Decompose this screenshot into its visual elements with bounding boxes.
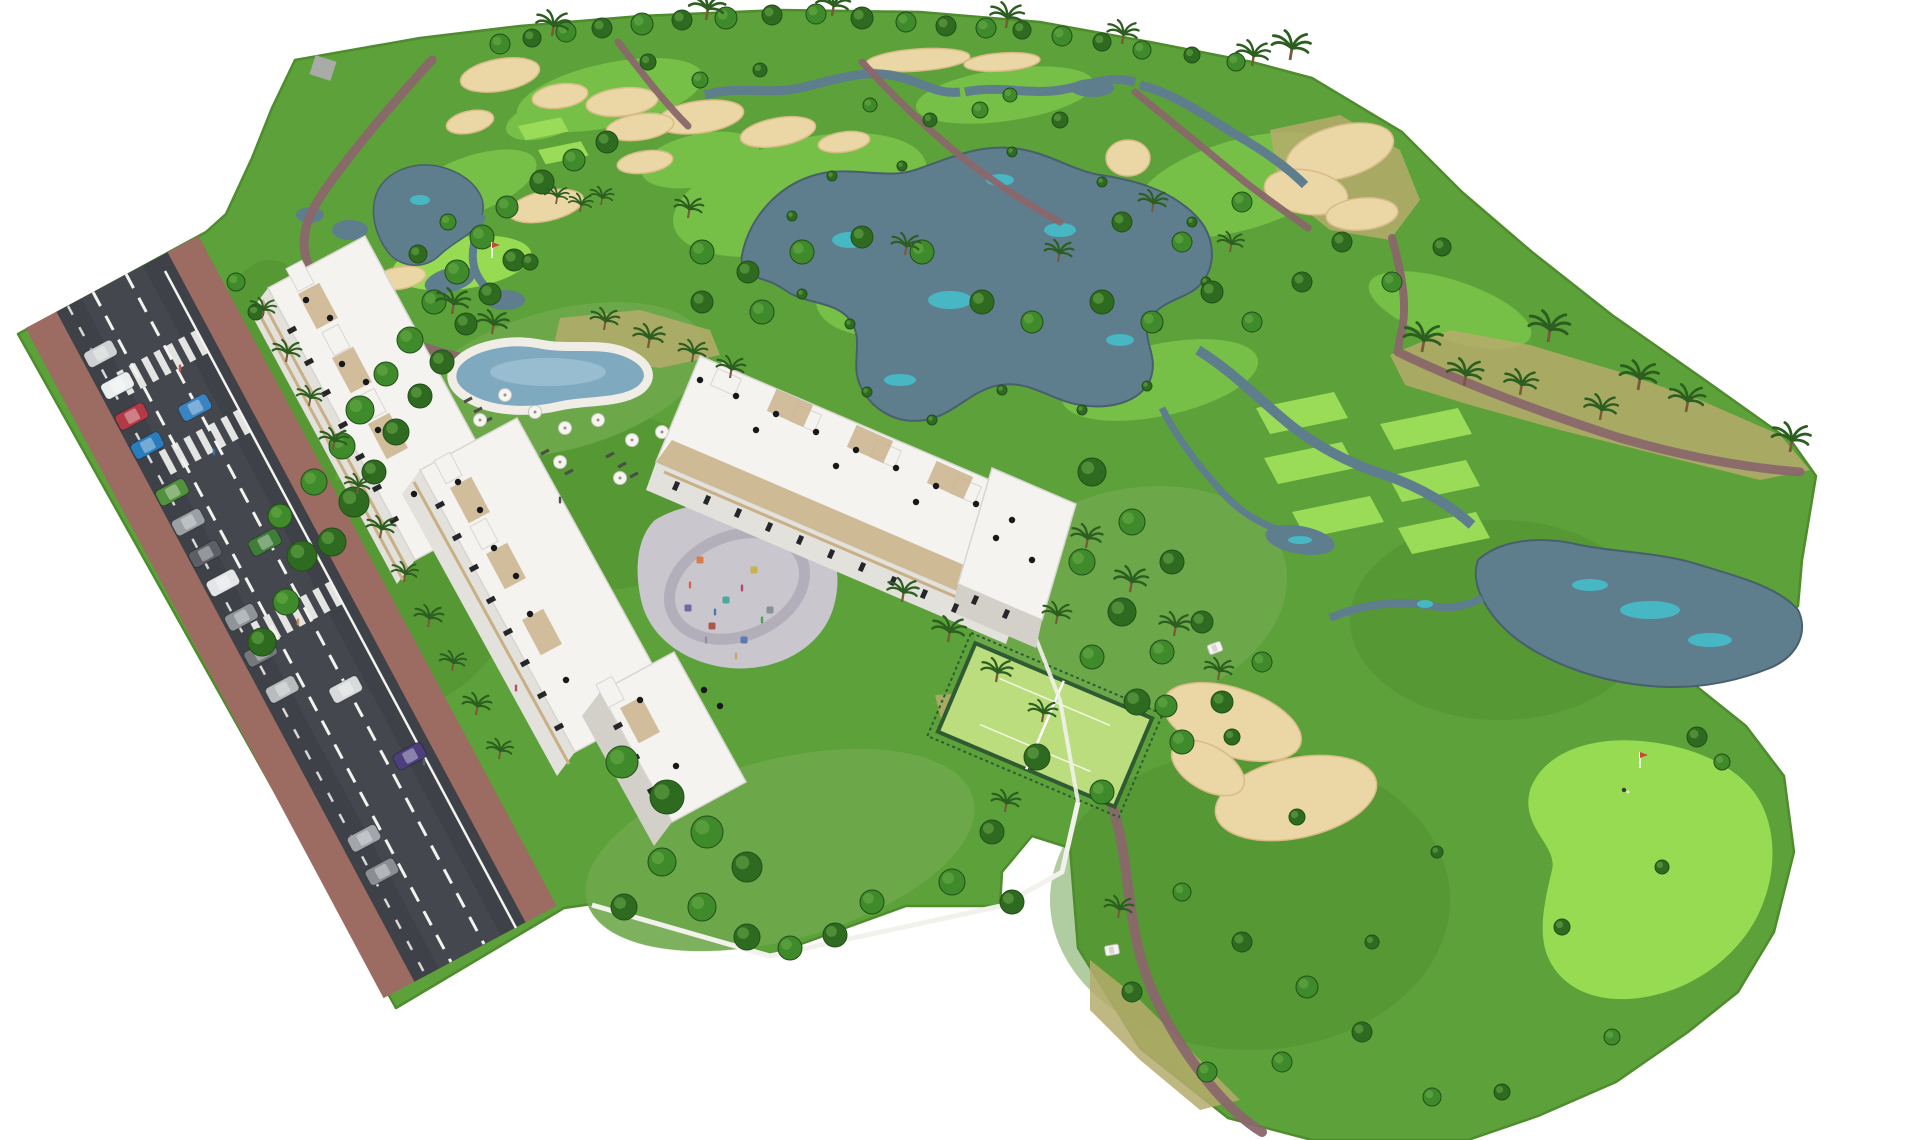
person xyxy=(297,619,299,626)
tree-highlight xyxy=(1435,240,1443,248)
tree-highlight xyxy=(828,172,833,177)
rooftop-umbrella xyxy=(411,491,417,497)
umbrella xyxy=(626,434,639,447)
playground-item xyxy=(751,567,758,574)
tree-highlight xyxy=(642,56,649,63)
tree-highlight xyxy=(693,243,704,254)
tree-highlight xyxy=(448,263,459,274)
round-tree xyxy=(1097,177,1107,187)
rooftop-umbrella xyxy=(303,297,309,303)
round-tree xyxy=(1173,883,1191,901)
round-tree xyxy=(648,848,676,876)
golf-cart xyxy=(1104,944,1120,956)
tree-highlight xyxy=(1158,698,1168,708)
round-tree xyxy=(1155,695,1177,717)
tree-highlight xyxy=(1115,215,1124,224)
round-tree xyxy=(1292,272,1312,292)
tree-highlight xyxy=(1083,648,1094,659)
tree-highlight xyxy=(411,247,419,255)
tree-highlight xyxy=(1112,602,1125,615)
round-tree xyxy=(936,16,956,36)
tree-highlight xyxy=(973,293,984,304)
round-tree xyxy=(734,924,760,950)
tree-highlight xyxy=(1024,314,1034,324)
rooftop-umbrella xyxy=(563,677,569,683)
north-pond xyxy=(1070,79,1114,97)
tree-highlight xyxy=(442,216,449,223)
round-tree xyxy=(1078,458,1106,486)
rooftop-umbrella xyxy=(455,479,461,485)
round-tree xyxy=(408,384,432,408)
tree-highlight xyxy=(1188,218,1193,223)
round-tree xyxy=(851,7,873,29)
tree-highlight xyxy=(939,19,948,28)
palm-tree xyxy=(1272,31,1310,60)
tree-highlight xyxy=(1008,148,1013,153)
rooftop-umbrella xyxy=(513,573,519,579)
tree-highlight xyxy=(493,37,502,46)
tree-highlight xyxy=(925,115,931,121)
tree-highlight xyxy=(755,65,761,71)
round-tree xyxy=(1170,730,1194,754)
shallow-water xyxy=(1106,334,1134,346)
tree-highlight xyxy=(863,388,868,393)
shallow-water xyxy=(1572,579,1608,591)
playground-item xyxy=(697,557,704,564)
rooftop-umbrella xyxy=(375,427,381,433)
round-tree xyxy=(339,487,369,517)
tree-highlight xyxy=(1122,512,1134,524)
tree-highlight xyxy=(1657,862,1663,868)
person xyxy=(714,609,716,616)
tree-highlight xyxy=(276,592,288,604)
person xyxy=(761,617,763,624)
tree-highlight xyxy=(1235,935,1244,944)
person xyxy=(179,365,181,372)
tree-highlight xyxy=(998,386,1003,391)
umbrella xyxy=(554,456,567,469)
tree-highlight xyxy=(425,293,436,304)
round-tree xyxy=(1232,932,1252,952)
tree-highlight xyxy=(499,199,509,209)
round-tree xyxy=(1494,1084,1510,1100)
round-tree xyxy=(1160,550,1184,574)
tree-highlight xyxy=(251,632,264,645)
tree-highlight xyxy=(736,856,750,870)
person xyxy=(735,653,737,660)
tree-highlight xyxy=(1163,553,1174,564)
round-tree xyxy=(1423,1088,1441,1106)
tree-highlight xyxy=(1015,23,1023,31)
round-tree xyxy=(374,362,398,386)
round-tree xyxy=(1003,88,1017,102)
round-tree xyxy=(440,214,456,230)
round-tree xyxy=(1013,21,1031,39)
tree-highlight xyxy=(1095,35,1103,43)
tree-highlight xyxy=(473,228,484,239)
round-tree xyxy=(753,63,767,77)
round-tree xyxy=(860,890,884,914)
tree-highlight xyxy=(1194,614,1204,624)
tree-highlight xyxy=(846,320,851,325)
tree-highlight xyxy=(1135,43,1143,51)
round-tree xyxy=(1069,549,1095,575)
tree-highlight xyxy=(1214,694,1224,704)
rooftop-umbrella xyxy=(833,463,839,469)
umbrella-pole xyxy=(564,427,567,430)
round-tree xyxy=(845,319,855,329)
tree-highlight xyxy=(1153,643,1164,654)
tree-highlight xyxy=(1226,731,1233,738)
round-tree xyxy=(691,816,723,848)
round-tree xyxy=(923,113,937,127)
round-tree xyxy=(1365,935,1379,949)
round-tree xyxy=(863,98,877,112)
round-tree xyxy=(1604,1029,1620,1045)
round-tree xyxy=(1021,311,1043,333)
round-tree xyxy=(1090,290,1114,314)
tree-highlight xyxy=(1433,848,1438,853)
round-tree xyxy=(806,4,826,24)
tree-highlight xyxy=(898,162,903,167)
tree-highlight xyxy=(1716,756,1723,763)
tree-highlight xyxy=(343,491,357,505)
rooftop-umbrella xyxy=(637,697,643,703)
round-tree xyxy=(318,528,346,556)
tree-highlight xyxy=(1072,552,1084,564)
round-tree xyxy=(1382,272,1402,292)
round-tree xyxy=(939,869,965,895)
playground-item xyxy=(685,605,692,612)
tree-highlight xyxy=(1093,293,1104,304)
round-tree xyxy=(273,589,299,615)
tree-highlight xyxy=(595,21,604,30)
person xyxy=(515,685,517,692)
tree-highlight xyxy=(1291,811,1298,818)
tree-highlight xyxy=(1078,406,1083,411)
round-tree xyxy=(1197,1062,1217,1082)
rooftop-umbrella xyxy=(853,447,859,453)
tree-highlight xyxy=(942,872,954,884)
round-tree xyxy=(1211,691,1233,713)
umbrella xyxy=(614,472,627,485)
tree-highlight xyxy=(798,290,803,295)
tree-highlight xyxy=(793,243,804,254)
tree-highlight xyxy=(652,852,665,865)
round-tree xyxy=(1714,754,1730,770)
round-tree xyxy=(640,54,656,70)
round-tree xyxy=(1007,147,1017,157)
tree-highlight xyxy=(1606,1031,1613,1038)
round-tree xyxy=(592,18,612,38)
tree-highlight xyxy=(692,897,705,910)
tree-highlight xyxy=(566,152,576,162)
round-tree xyxy=(1252,652,1272,672)
umbrella-pole xyxy=(534,411,537,414)
round-tree xyxy=(1201,281,1223,303)
rooftop-umbrella xyxy=(717,703,723,709)
round-tree xyxy=(383,419,409,445)
tree-highlight xyxy=(1144,314,1154,324)
pool-shallow xyxy=(490,358,606,386)
round-tree xyxy=(301,469,327,495)
round-tree xyxy=(611,894,637,920)
tree-highlight xyxy=(524,256,531,263)
tree-highlight xyxy=(654,784,669,799)
umbrella xyxy=(559,422,572,435)
rooftop-umbrella xyxy=(363,379,369,385)
rooftop-umbrella xyxy=(527,611,533,617)
tree-highlight xyxy=(433,353,444,364)
rooftop-umbrella xyxy=(753,427,759,433)
rooftop-umbrella xyxy=(339,361,345,367)
round-tree xyxy=(997,385,1007,395)
tree-highlight xyxy=(854,10,864,20)
round-tree xyxy=(1141,311,1163,333)
tree-highlight xyxy=(1127,692,1139,704)
rooftop-umbrella xyxy=(491,545,497,551)
tree-highlight xyxy=(1143,382,1148,387)
tree-highlight xyxy=(271,507,282,518)
round-tree xyxy=(503,249,525,271)
tree-highlight xyxy=(1556,921,1563,928)
round-tree xyxy=(248,628,276,656)
round-tree xyxy=(596,131,618,153)
tree-highlight xyxy=(899,15,908,24)
tree-highlight xyxy=(1204,284,1214,294)
tree-highlight xyxy=(974,104,981,111)
round-tree xyxy=(1052,26,1072,46)
rooftop-umbrella xyxy=(913,499,919,505)
round-tree xyxy=(737,261,759,283)
round-tree xyxy=(522,254,538,270)
tree-highlight xyxy=(599,134,609,144)
round-tree xyxy=(851,226,873,248)
round-tree xyxy=(445,260,469,284)
round-tree xyxy=(362,460,386,484)
round-tree xyxy=(1000,890,1024,914)
umbrella xyxy=(592,414,605,427)
tree-highlight xyxy=(1496,1086,1503,1093)
rooftop-umbrella xyxy=(933,483,939,489)
round-tree xyxy=(1172,232,1192,252)
umbrella-pole xyxy=(597,419,600,422)
rooftop-umbrella xyxy=(701,687,707,693)
tree-highlight xyxy=(809,7,818,16)
round-tree xyxy=(455,313,477,335)
tree-highlight xyxy=(1175,235,1184,244)
round-tree xyxy=(1191,611,1213,633)
playground-item xyxy=(741,637,748,644)
tree-highlight xyxy=(291,545,305,559)
tree-highlight xyxy=(983,823,994,834)
rooftop-umbrella xyxy=(673,763,679,769)
playground-item xyxy=(723,597,730,604)
tree-highlight xyxy=(1093,783,1104,794)
round-tree xyxy=(1142,381,1152,391)
tree-highlight xyxy=(737,927,749,939)
tree-highlight xyxy=(350,400,363,413)
tree-highlight xyxy=(525,31,533,39)
round-tree xyxy=(1119,509,1145,535)
round-tree xyxy=(1090,780,1114,804)
tree-highlight xyxy=(1173,733,1184,744)
umbrella xyxy=(474,414,487,427)
rooftop-umbrella xyxy=(993,535,999,541)
tree-highlight xyxy=(1055,29,1064,38)
tree-highlight xyxy=(854,229,864,239)
round-tree xyxy=(823,923,847,947)
umbrella-pole xyxy=(479,419,482,422)
rooftop-umbrella xyxy=(1029,557,1035,563)
tree-highlight xyxy=(863,893,874,904)
round-tree xyxy=(606,746,638,778)
tree-highlight xyxy=(1186,49,1193,56)
shallow-water xyxy=(1417,600,1433,608)
tree-highlight xyxy=(1245,315,1254,324)
round-tree xyxy=(692,72,708,88)
golfer xyxy=(1622,788,1626,792)
tree-highlight xyxy=(506,252,516,262)
tree-highlight xyxy=(1335,235,1344,244)
round-tree xyxy=(910,240,934,264)
tree-highlight xyxy=(788,212,793,217)
tree-highlight xyxy=(765,8,774,17)
round-tree xyxy=(470,225,494,249)
round-tree xyxy=(787,211,797,221)
umbrella xyxy=(529,406,542,419)
tree-highlight xyxy=(482,286,492,296)
round-tree xyxy=(346,396,374,424)
round-tree xyxy=(750,300,774,324)
tree-highlight xyxy=(377,365,388,376)
playground-item xyxy=(709,623,716,630)
round-tree xyxy=(1232,192,1252,212)
round-tree xyxy=(1133,41,1151,59)
tree-highlight xyxy=(753,303,764,314)
tree-highlight xyxy=(979,21,988,30)
tree-highlight xyxy=(229,275,237,283)
round-tree xyxy=(1655,860,1669,874)
shallow-water xyxy=(410,195,430,205)
round-tree xyxy=(631,13,653,35)
person xyxy=(741,585,743,592)
round-tree xyxy=(1122,982,1142,1002)
round-tree xyxy=(672,10,692,30)
round-tree xyxy=(976,18,996,38)
round-tree xyxy=(1052,112,1068,128)
tree-highlight xyxy=(304,472,316,484)
round-tree xyxy=(287,541,317,571)
round-tree xyxy=(563,149,585,171)
tree-highlight xyxy=(1295,275,1304,284)
rooftop-umbrella xyxy=(327,315,333,321)
round-tree xyxy=(896,12,916,32)
round-tree xyxy=(523,29,541,47)
tree-highlight xyxy=(614,897,626,909)
round-tree xyxy=(927,415,937,425)
person xyxy=(213,449,215,456)
tree-highlight xyxy=(1003,893,1014,904)
round-tree xyxy=(1187,217,1197,227)
playground-item xyxy=(767,607,774,614)
rooftop-umbrella xyxy=(477,507,483,513)
tree-highlight xyxy=(1175,885,1183,893)
round-tree xyxy=(1080,645,1104,669)
round-tree xyxy=(827,171,837,181)
tree-highlight xyxy=(1255,655,1264,664)
shallow-water xyxy=(1288,536,1312,544)
round-tree xyxy=(897,161,907,171)
tree-highlight xyxy=(634,16,644,26)
umbrella-pole xyxy=(661,431,664,434)
round-tree xyxy=(1296,976,1318,998)
round-tree xyxy=(1289,809,1305,825)
tree-highlight xyxy=(1275,1055,1284,1064)
umbrella-pole xyxy=(631,439,634,442)
tree-highlight xyxy=(411,387,422,398)
rooftop-umbrella xyxy=(813,429,819,435)
shallow-water xyxy=(928,291,972,309)
tree-highlight xyxy=(1125,985,1134,994)
round-tree xyxy=(688,893,716,921)
round-tree xyxy=(1227,53,1245,71)
shallow-water xyxy=(1620,601,1680,619)
round-tree xyxy=(1352,1022,1372,1042)
person xyxy=(423,759,425,766)
round-tree xyxy=(1687,727,1707,747)
umbrella-pole xyxy=(504,394,507,397)
round-tree xyxy=(1332,232,1352,252)
umbrella-pole xyxy=(559,461,562,464)
tree-highlight xyxy=(1299,979,1309,989)
tree-highlight xyxy=(322,532,335,545)
round-tree xyxy=(227,273,245,291)
round-tree xyxy=(862,387,872,397)
umbrella xyxy=(499,389,512,402)
tree-highlight xyxy=(865,100,871,106)
tree-highlight xyxy=(694,294,704,304)
round-tree xyxy=(1272,1052,1292,1072)
tree-highlight xyxy=(400,330,412,342)
round-tree xyxy=(1433,238,1451,256)
round-tree xyxy=(479,283,501,305)
umbrella-pole xyxy=(619,477,622,480)
round-tree xyxy=(972,102,988,118)
tree-highlight xyxy=(1690,730,1699,739)
rooftop-umbrella xyxy=(733,393,739,399)
tree-highlight xyxy=(1200,1065,1209,1074)
aerial-masterplan-render xyxy=(0,0,1920,1140)
rooftop-umbrella xyxy=(973,501,979,507)
round-tree xyxy=(1108,598,1136,626)
tree-highlight xyxy=(695,820,709,834)
tree-highlight xyxy=(1367,937,1373,943)
person xyxy=(705,637,707,644)
round-tree xyxy=(1024,744,1050,770)
round-tree xyxy=(1093,33,1111,51)
tree-highlight xyxy=(1098,178,1103,183)
golf-resort-scene xyxy=(0,0,1920,1140)
tree-highlight xyxy=(365,463,376,474)
tree-highlight xyxy=(1229,55,1237,63)
round-tree xyxy=(778,936,802,960)
round-tree xyxy=(496,196,518,218)
shallow-water xyxy=(1688,633,1732,647)
round-tree xyxy=(268,504,292,528)
tree-highlight xyxy=(610,750,624,764)
rooftop-umbrella xyxy=(773,411,779,417)
